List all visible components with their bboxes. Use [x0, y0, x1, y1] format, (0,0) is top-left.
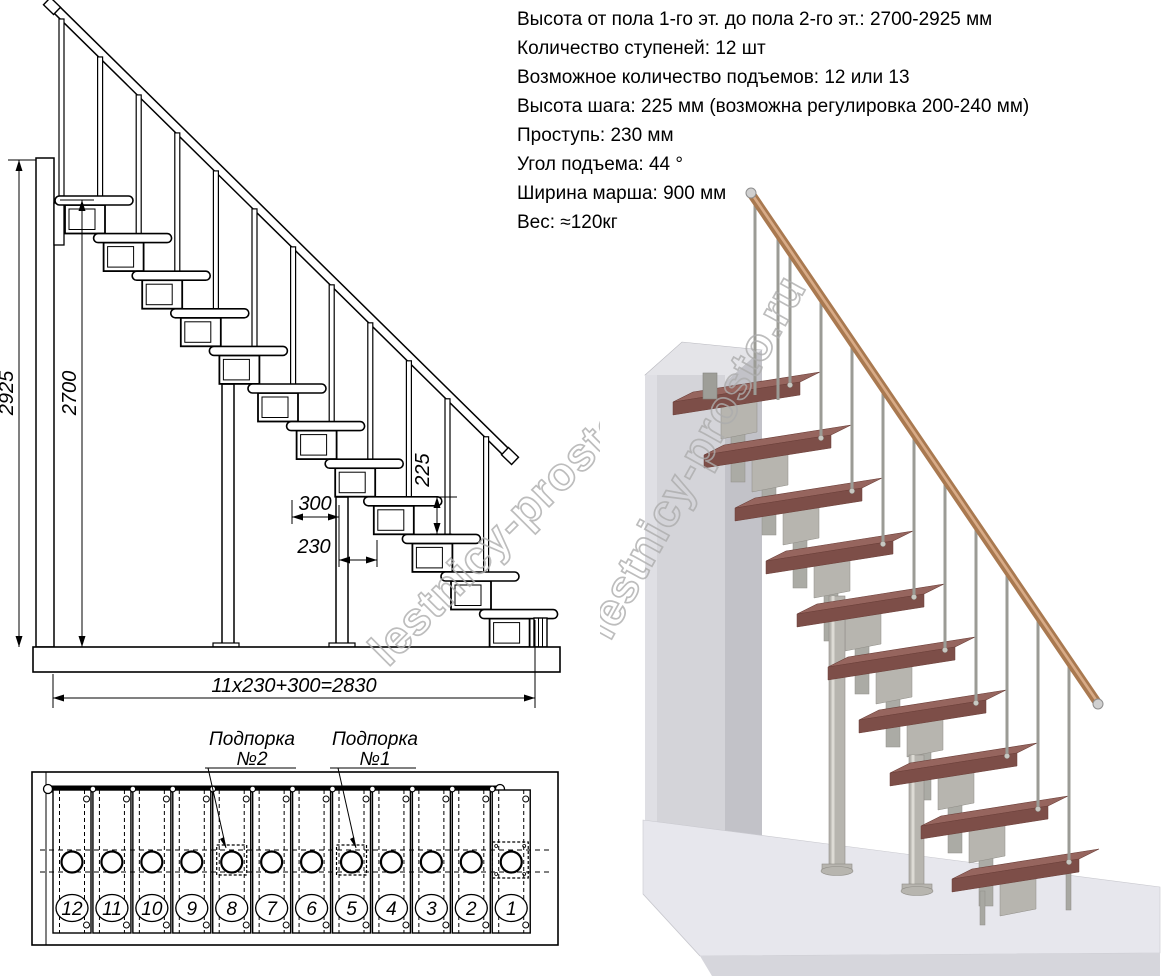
dim-2925-label: 2925	[0, 370, 18, 416]
plan-screw	[323, 796, 329, 802]
plan-module-hole	[62, 852, 83, 873]
support-1-label-line1: Подпорка	[332, 729, 418, 750]
plan-screw	[123, 922, 129, 928]
plan-screw	[243, 796, 249, 802]
elev-tread	[364, 497, 442, 506]
plan-screw	[443, 796, 449, 802]
plan-module-hole	[421, 852, 442, 873]
render-step-leg	[980, 891, 985, 925]
elev-tread	[94, 234, 172, 243]
plan-module-hole	[101, 852, 122, 873]
render-baluster-joint	[911, 594, 916, 599]
plan-step-number: 1	[506, 899, 517, 920]
plan-rail-joint	[170, 786, 176, 792]
dimension-flight-height: 2700	[59, 200, 94, 647]
plan-module-hole	[341, 852, 362, 873]
plan-step-number: 2	[465, 899, 477, 920]
plan-screw	[443, 922, 449, 928]
render-baluster-joint	[1066, 859, 1071, 864]
plan-rail-joint	[370, 786, 376, 792]
floor-base	[33, 647, 560, 672]
plan-screw	[283, 922, 289, 928]
wall-bracket	[54, 203, 64, 245]
plan-step-number: 8	[226, 899, 237, 920]
render-baluster-joint	[1035, 806, 1040, 811]
render-baluster-joint	[849, 488, 854, 493]
elevation-drawing: 2925 2700 300 230	[0, 0, 600, 712]
elev-tread	[480, 610, 558, 619]
support-2-label-line1: Подпорка	[209, 729, 295, 750]
render-column-foot	[901, 887, 933, 896]
elev-tread	[132, 271, 210, 280]
plan-step-number: 11	[102, 899, 122, 920]
plan-screw	[84, 796, 90, 802]
plan-rail-joint	[489, 786, 495, 792]
plan-rail-joint	[450, 786, 456, 792]
render-baluster-joint	[942, 647, 947, 652]
render-baluster-joint	[818, 435, 823, 440]
support-1-label-line2: №1	[359, 749, 390, 770]
render-step-leg	[1066, 870, 1071, 910]
plan-screw	[483, 922, 489, 928]
bottom-step-legs	[534, 618, 547, 647]
plan-screw	[523, 796, 529, 802]
render-baluster-joint	[787, 382, 792, 387]
elevation-balusters	[59, 19, 489, 610]
support-2-label-line2: №2	[236, 749, 268, 770]
plan-screw	[323, 922, 329, 928]
plan-step-number: 7	[266, 899, 278, 920]
render-baluster-joint	[973, 700, 978, 705]
plan-screw	[403, 922, 409, 928]
plan-module-hole	[501, 852, 522, 873]
plan-screw	[243, 922, 249, 928]
plan-step-number: 9	[187, 899, 198, 920]
elev-tread	[287, 422, 365, 431]
support-post-1	[329, 497, 355, 647]
dim-length-label: 11x230+300=2830	[211, 675, 376, 697]
render-rail-end-cap	[1093, 699, 1103, 709]
render-support-column-2	[829, 596, 845, 870]
plan-rail-joint	[290, 786, 296, 792]
plan-module-hole	[261, 852, 282, 873]
elev-tread	[171, 309, 249, 318]
render-column-foot	[821, 867, 853, 876]
plan-module-hole	[381, 852, 402, 873]
dim-300-label: 300	[298, 493, 331, 515]
plan-module-hole	[181, 852, 202, 873]
plan-screw	[84, 922, 90, 928]
plan-screw	[203, 796, 209, 802]
plan-screw	[163, 922, 169, 928]
render-floor-slab	[643, 820, 1160, 976]
plan-rail-joint	[330, 786, 336, 792]
stair-specification-sheet: Высота от пола 1-го эт. до пола 2-го эт.…	[0, 0, 1166, 977]
plan-module-hole	[461, 852, 482, 873]
plan-screw	[203, 922, 209, 928]
wall-board	[36, 158, 54, 647]
plan-step-number: 3	[426, 899, 437, 920]
plan-rail-joint	[410, 786, 416, 792]
render-3d: lestnicy-prosto.ru	[600, 170, 1166, 977]
render-baluster-joint	[1004, 753, 1009, 758]
dim-2700-label: 2700	[59, 371, 81, 417]
plan-rail-joint	[130, 786, 136, 792]
elev-tread	[209, 346, 287, 355]
dimension-total-height: 2925	[0, 160, 36, 647]
plan-module-hole	[301, 852, 322, 873]
elev-tread	[248, 384, 326, 393]
plan-screw	[403, 796, 409, 802]
dim-225-label: 225	[412, 452, 434, 487]
support-post-2	[213, 384, 239, 647]
plan-screw	[363, 796, 369, 802]
elev-baluster	[59, 19, 64, 196]
plan-rail-joint	[250, 786, 256, 792]
plan-screw	[163, 796, 169, 802]
plan-step-number: 10	[141, 899, 163, 920]
dim-230-label: 230	[296, 536, 330, 558]
plan-drawing: 121110987654321 Подпорка №2 Подпорка №1	[0, 712, 600, 977]
plan-screw	[123, 796, 129, 802]
plan-screw	[283, 796, 289, 802]
plan-screw	[483, 796, 489, 802]
plan-step-number: 5	[346, 899, 357, 920]
plan-step-number: 12	[61, 899, 83, 920]
plan-step-number: 4	[386, 899, 397, 920]
plan-module-hole	[141, 852, 162, 873]
elev-tread	[325, 459, 403, 468]
plan-rail-joint	[90, 786, 96, 792]
plan-screw	[363, 922, 369, 928]
plan-screw	[523, 922, 529, 928]
render-baluster-joint	[880, 541, 885, 546]
plan-step-number: 6	[306, 899, 317, 920]
plan-module-hole	[221, 852, 242, 873]
render-rail-top-cap	[746, 188, 756, 198]
